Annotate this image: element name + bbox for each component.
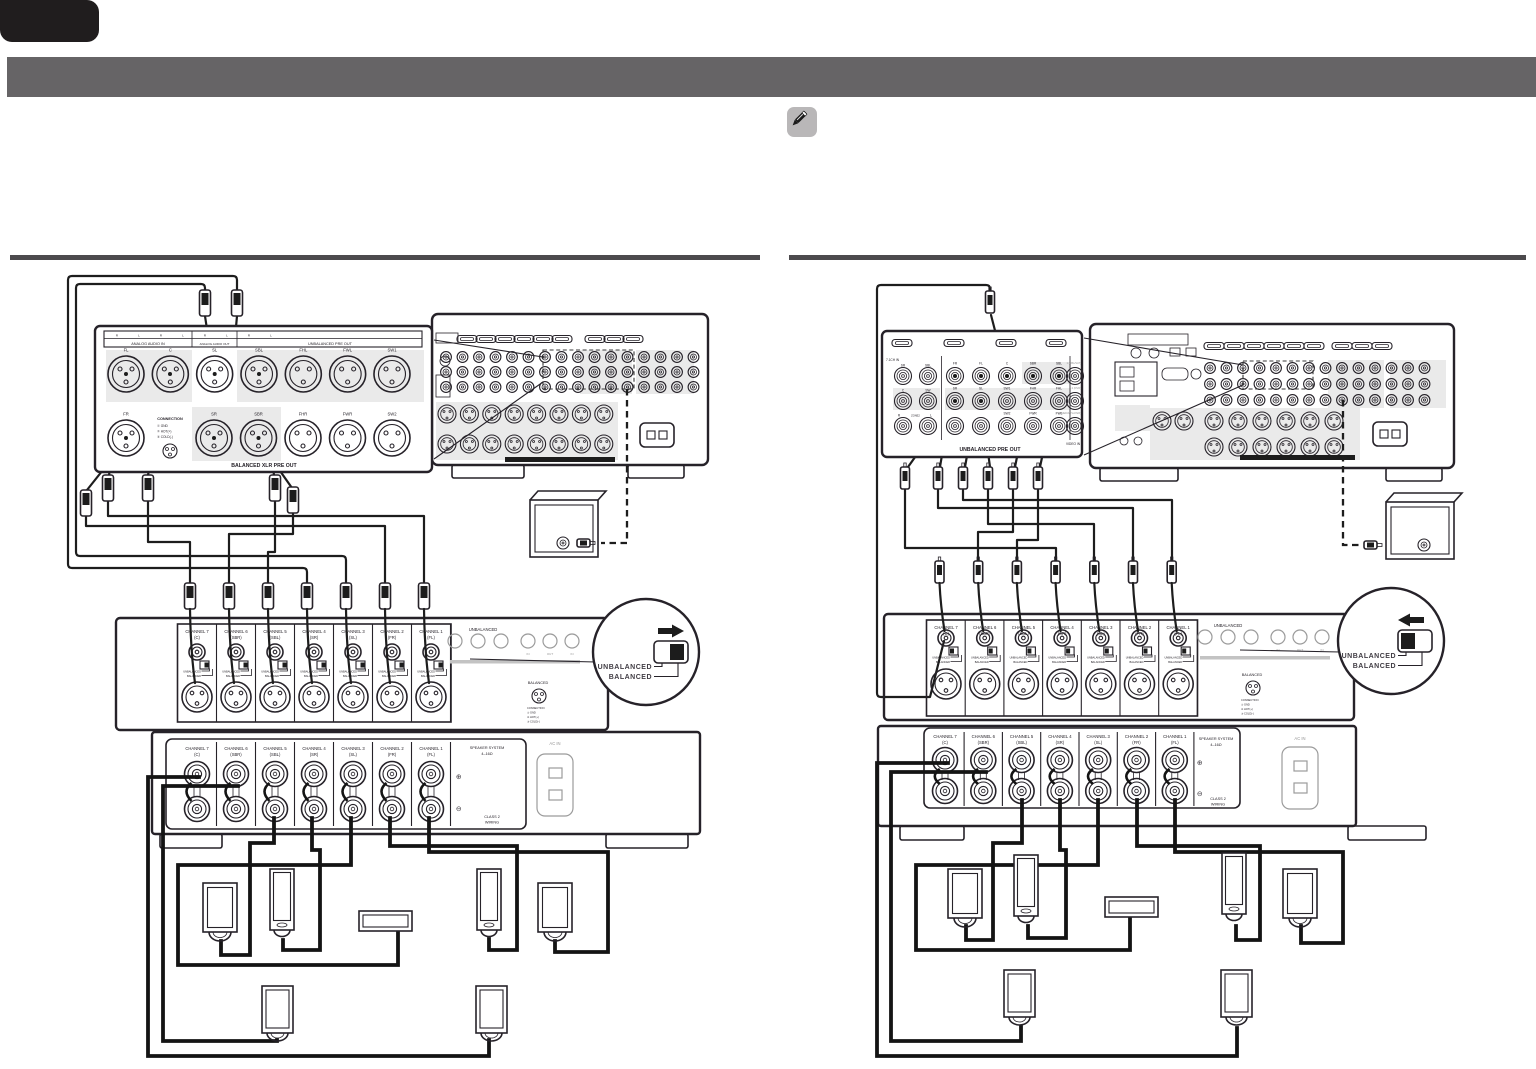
balanced-connection-diagram: RLRLRLRL ANALOG AUDIO IN ANALOG AUDIO OU…: [68, 276, 708, 1056]
xlr-input-icon: [1163, 669, 1193, 699]
height-left-speaker: [270, 869, 294, 937]
svg-text:BALANCED: BALANCED: [1091, 660, 1105, 664]
svg-text:② HOT(+): ② HOT(+): [527, 715, 539, 719]
height-right-speaker: [1222, 853, 1246, 921]
svg-text:UNBALANCED: UNBALANCED: [1164, 656, 1182, 660]
svg-text:4–16Ω: 4–16Ω: [1210, 743, 1221, 747]
svg-text:CHANNEL 4: CHANNEL 4: [302, 746, 326, 751]
svg-text:SBL: SBL: [925, 364, 931, 368]
svg-text:③ COLD(-): ③ COLD(-): [527, 720, 540, 724]
section-label: ANALOG AUDIO IN: [131, 342, 165, 346]
receiver-foot: [1100, 468, 1178, 481]
amp-foot: [606, 834, 688, 848]
balanced-ref-label: BALANCED: [528, 681, 549, 685]
binding-post-icon: [302, 762, 327, 787]
amp-foot: [1348, 826, 1426, 840]
amp-channel-speaker: CHANNEL 7 (C): [185, 742, 217, 826]
svg-text:(SR): (SR): [310, 635, 319, 640]
amp-channel-input: CHANNEL 2 (FR) UNBALANCED BALANCED: [1125, 557, 1159, 716]
hdmi-port-icon: [1372, 343, 1392, 350]
svg-text:UNBALANCED: UNBALANCED: [261, 670, 279, 674]
svg-text:CHANNEL 6: CHANNEL 6: [224, 629, 248, 634]
svg-text:CHANNEL 2: CHANNEL 2: [380, 629, 404, 634]
hdmi-port-icon: [1332, 343, 1352, 350]
svg-text:CHANNEL 6: CHANNEL 6: [972, 734, 996, 739]
svg-text:UNBALANCED: UNBALANCED: [1126, 656, 1144, 660]
rca-plug-icon: [984, 463, 993, 489]
svg-text:IN: IN: [571, 652, 574, 656]
svg-text:FWL: FWL: [343, 348, 353, 353]
svg-text:BALANCED: BALANCED: [1013, 660, 1027, 664]
svg-text:CHANNEL 4: CHANNEL 4: [1048, 734, 1072, 739]
xlr-plug-icon: [380, 583, 391, 609]
svg-text:IN: IN: [1277, 648, 1280, 652]
front-right-speaker: [1283, 869, 1317, 927]
unbalanced-connection-diagram: 7.1CH IN SR SBL C SW R ZONE2 L FR: [877, 285, 1462, 1056]
hdmi-port-icon: [585, 336, 605, 343]
xlr-plug-icon: [302, 583, 313, 609]
svg-text:OUT: OUT: [547, 652, 554, 656]
svg-text:UNBALANCED: UNBALANCED: [1087, 656, 1105, 660]
av-receiver-rear-panel: [1084, 324, 1454, 481]
svg-text:2 (DVD): 2 (DVD): [1072, 386, 1082, 390]
svg-text:SPEAKER SYSTEM: SPEAKER SYSTEM: [1199, 737, 1234, 741]
amp-input-channels: CHANNEL 7 (C) UNBALANCED BALANCED CHA: [182, 583, 451, 722]
rca-grid-column: [1221, 363, 1232, 406]
svg-text:FHL: FHL: [1056, 387, 1062, 391]
hdmi-port-icon: [1224, 343, 1244, 350]
svg-text:(FR): (FR): [1132, 740, 1141, 745]
svg-text:(C): (C): [194, 635, 200, 640]
front-right-speaker: [538, 883, 572, 941]
binding-post-icon: [933, 748, 958, 773]
rca-grid-column: [490, 352, 501, 393]
front-left-speaker: [948, 869, 982, 927]
rca-plug-icon: [1051, 557, 1060, 583]
svg-text:CHANNEL 1: CHANNEL 1: [419, 746, 443, 751]
svg-text:FHR: FHR: [299, 412, 308, 417]
rca-grid-column: [1254, 363, 1265, 406]
amp-input-channels: CHANNEL 7 (C) UNBALANCED BALANCED CHA: [931, 557, 1197, 716]
xlr-input-icon: [221, 682, 251, 712]
svg-text:⊕: ⊕: [456, 774, 462, 781]
amp-channel-input: CHANNEL 4 (SR) UNBALANCED BALANCED: [299, 583, 334, 722]
svg-text:BALANCED: BALANCED: [1052, 660, 1066, 664]
binding-post-icon: [380, 797, 405, 822]
rca-grid-column: [507, 352, 518, 393]
xlr-input-icon: [260, 682, 290, 712]
binding-post-icon: [419, 797, 444, 822]
amp-channel-input: CHANNEL 1 (FL) UNBALANCED BALANCED: [416, 583, 451, 722]
hdmi-port-icon: [514, 336, 534, 343]
svg-text:BALANCED: BALANCED: [975, 660, 989, 664]
svg-text:FWR: FWR: [343, 412, 353, 417]
svg-text:SR: SR: [211, 412, 217, 417]
balanced-label: BALANCED: [609, 674, 652, 681]
hdmi-row-b: [1332, 343, 1392, 350]
preout-highlight-box: [1243, 361, 1313, 389]
svg-text:(SBL): (SBL): [270, 752, 281, 757]
amp-channel-speaker: CHANNEL 2 (FR): [1124, 732, 1156, 806]
svg-text:CHANNEL 2: CHANNEL 2: [1125, 734, 1149, 739]
svg-text:SW2: SW2: [1004, 412, 1011, 416]
binding-post-icon: [419, 762, 444, 787]
unbalanced-label: UNBALANCED: [598, 664, 652, 671]
rca-plug-icon: [934, 463, 943, 489]
rca-plug-icon: [974, 557, 983, 583]
unbalanced-section-label: UNBALANCED: [469, 627, 498, 632]
xlr-input-icon: [299, 682, 329, 712]
ac-inlet-icon: [1282, 747, 1318, 809]
svg-text:CHANNEL 6: CHANNEL 6: [224, 746, 248, 751]
power-amp-speaker-panel: CHANNEL 7 (C) CHANNEL 6 (SBR): [878, 726, 1426, 840]
rca-plug-icon: [1034, 463, 1043, 489]
svg-text:(SBL): (SBL): [270, 635, 281, 640]
svg-text:③ COLD(-): ③ COLD(-): [1241, 712, 1254, 716]
svg-text:⊕: ⊕: [1197, 760, 1203, 767]
amp-foot: [160, 834, 222, 848]
amp-channel-input: CHANNEL 5 (SBL) UNBALANCED BALANCED: [1008, 557, 1042, 716]
svg-text:(C): (C): [942, 740, 948, 745]
hdmi-port-icon: [1284, 343, 1304, 350]
xlr-input-icon: [338, 682, 368, 712]
binding-post-icon: [185, 797, 210, 822]
hdmi-port-icon: [1352, 343, 1372, 350]
amp-channel-input: CHANNEL 5 (SBL) UNBALANCED BALANCED: [260, 583, 295, 722]
svg-text:SW1: SW1: [1004, 387, 1011, 391]
power-amp-input-panel: CHANNEL 7 (C) UNBALANCED BALANCED CHA: [884, 557, 1354, 720]
svg-text:UNBALANCED: UNBALANCED: [339, 670, 357, 674]
amp-channel-input: CHANNEL 3 (SL) UNBALANCED BALANCED: [338, 583, 373, 722]
hdmi-port-icon: [476, 336, 496, 343]
hdmi-port-icon: [623, 336, 643, 343]
balanced-ref-label: BALANCED: [1242, 673, 1263, 677]
svg-text:SW: SW: [925, 389, 930, 393]
binding-post-icon: [1124, 748, 1149, 773]
amp-channel-speaker: CHANNEL 1 (FL): [419, 742, 451, 826]
binding-post-icon: [971, 748, 996, 773]
center-speaker: [1105, 897, 1158, 917]
svg-text:UNBALANCED: UNBALANCED: [971, 656, 989, 660]
surround-right-speaker: [1221, 970, 1252, 1025]
hdmi-port-icon: [533, 336, 553, 343]
section-label: ANALOG AUDIO OUT: [200, 342, 230, 346]
rca-plug-icon: [1167, 557, 1176, 583]
rca-plug-icon: [935, 557, 944, 583]
svg-text:WIRING: WIRING: [1211, 803, 1225, 807]
hdmi-port-icon: [604, 336, 624, 343]
amp-channel-speaker: CHANNEL 4 (SR): [302, 742, 334, 826]
unbalanced-preout-panel: 7.1CH IN SR SBL C SW R ZONE2 L FR: [882, 331, 1084, 457]
svg-text:FL: FL: [124, 348, 130, 353]
amp-channel-speaker: CHANNEL 6 (SBR): [971, 732, 1003, 806]
xlr-plug-icon: [232, 290, 243, 316]
svg-text:(SR): (SR): [310, 752, 319, 757]
hdmi-row-b: [585, 336, 643, 343]
corner-label: 7.1CH IN: [886, 358, 900, 362]
ac-in-label: AC IN: [549, 741, 560, 746]
svg-text:(SBR): (SBR): [230, 752, 242, 757]
av-receiver-rear-panel: [432, 314, 708, 478]
xlr-plug-icon: [224, 583, 235, 609]
balanced-xlr-preout-panel: RLRLRLRL ANALOG AUDIO IN ANALOG AUDIO OU…: [95, 326, 432, 472]
svg-text:CHANNEL 3: CHANNEL 3: [1087, 734, 1111, 739]
front-left-speaker: [203, 883, 237, 941]
surround-left-speaker: [262, 986, 293, 1041]
svg-text:SR: SR: [953, 387, 958, 391]
xlr-plug-icon: [419, 583, 430, 609]
amp-channel-speaker: CHANNEL 6 (SBR): [224, 742, 256, 826]
xlr-plug-icon: [81, 490, 92, 516]
binding-post-icon: [1086, 748, 1111, 773]
xlr-plug-icon: [185, 583, 196, 609]
switch-mode-callout: UNBALANCED BALANCED: [470, 599, 699, 705]
svg-text:(SR): (SR): [1056, 740, 1065, 745]
xlr-input-icon: [416, 682, 446, 712]
binding-post-icon: [302, 797, 327, 822]
xlr-input-icon: [1086, 669, 1116, 699]
svg-text:UNBALANCED: UNBALANCED: [183, 670, 201, 674]
surround-left-speaker: [1004, 970, 1035, 1025]
svg-text:SW2: SW2: [387, 412, 397, 417]
xlr-plug-icon: [103, 475, 114, 501]
svg-text:BALANCED: BALANCED: [1130, 660, 1144, 664]
hdmi-port-icon: [1204, 343, 1224, 350]
amp-channel-speaker: CHANNEL 5 (SBL): [1009, 732, 1041, 806]
svg-text:UNBALANCED: UNBALANCED: [222, 670, 240, 674]
svg-text:③ COLD(-): ③ COLD(-): [157, 435, 173, 439]
svg-text:FWR: FWR: [1029, 412, 1037, 416]
svg-text:(SBR): (SBR): [230, 635, 242, 640]
svg-text:CHANNEL 7: CHANNEL 7: [933, 734, 957, 739]
rca-plug-icon: [986, 287, 995, 313]
svg-text:① GND: ① GND: [157, 424, 169, 428]
surround-right-speaker: [476, 986, 507, 1041]
svg-text:⊖: ⊖: [1197, 791, 1203, 798]
amp-channel-speaker: CHANNEL 4 (SR): [1047, 732, 1079, 806]
svg-text:CHANNEL 5: CHANNEL 5: [263, 629, 287, 634]
svg-text:UNBALANCED: UNBALANCED: [417, 670, 435, 674]
svg-text:SPEAKER SYSTEM: SPEAKER SYSTEM: [470, 746, 505, 750]
xlr-plug-icon: [270, 475, 281, 501]
ac-inlet-icon: [537, 754, 573, 816]
xlr-input-icon: [1008, 669, 1038, 699]
svg-text:CONNECTION: CONNECTION: [1241, 698, 1259, 702]
svg-text:① GND: ① GND: [1241, 703, 1250, 707]
xlr-input-icon: [1047, 669, 1077, 699]
rca-grid-column: [523, 352, 534, 393]
amp-channel-input: CHANNEL 2 (FR) UNBALANCED BALANCED: [377, 583, 412, 722]
amp-channel-input: CHANNEL 1 (FL) UNBALANCED BALANCED: [1163, 557, 1197, 716]
amp-channel-speaker: CHANNEL 7 (C): [933, 732, 965, 806]
svg-text:(SBR): (SBR): [978, 740, 990, 745]
svg-text:3 (MEDIA PLAYER): 3 (MEDIA PLAYER): [1058, 411, 1081, 415]
svg-text:UNBALANCED: UNBALANCED: [932, 656, 950, 660]
amp-channel-input: CHANNEL 6 (SBR) UNBALANCED BALANCED: [221, 583, 256, 722]
xlr-plug-icon: [288, 487, 299, 513]
svg-text:SW1: SW1: [387, 348, 397, 353]
connection-diagrams: RLRLRLRL ANALOG AUDIO IN ANALOG AUDIO OU…: [0, 0, 1536, 1069]
svg-text:(SL): (SL): [1094, 740, 1103, 745]
hdmi-port-icon: [1244, 343, 1264, 350]
amp-channel-speaker: CHANNEL 2 (FR): [380, 742, 412, 826]
amp-foot: [900, 826, 964, 840]
rca-grid-column: [540, 352, 551, 393]
hdmi-row-a: [457, 336, 572, 343]
svg-text:FR: FR: [123, 412, 129, 417]
rca-plug-icon: [1364, 541, 1382, 549]
binding-post-icon: [224, 762, 249, 787]
svg-text:UNBALANCED: UNBALANCED: [300, 670, 318, 674]
amp-channel-speaker: CHANNEL 1 (FL): [1162, 732, 1194, 806]
svg-text:CONNECTION: CONNECTION: [157, 417, 183, 421]
binding-post-icon: [224, 797, 249, 822]
svg-text:FR: FR: [953, 362, 958, 366]
svg-text:(SL): (SL): [349, 752, 358, 757]
svg-text:C: C: [169, 348, 172, 353]
amp-channel-input: CHANNEL 7 (C) UNBALANCED BALANCED: [931, 557, 965, 716]
svg-text:FHL: FHL: [299, 348, 308, 353]
hdmi-port-icon: [1264, 343, 1284, 350]
svg-text:(FL): (FL): [427, 635, 435, 640]
video-in-label: VIDEO IN: [1066, 442, 1081, 446]
rca-plug-icon: [1090, 557, 1099, 583]
svg-text:BALANCED: BALANCED: [936, 660, 950, 664]
svg-text:1 (CBL/SAT): 1 (CBL/SAT): [1066, 361, 1081, 365]
xlr-plug-icon: [263, 583, 274, 609]
svg-text:SBL: SBL: [1056, 362, 1062, 366]
svg-text:CONNECTION: CONNECTION: [527, 706, 545, 710]
svg-text:(C): (C): [194, 752, 200, 757]
unbalanced-section-label: UNBALANCED: [1214, 623, 1243, 628]
hdmi-row-a: [1204, 343, 1324, 350]
svg-text:FHR: FHR: [1030, 387, 1037, 391]
svg-text:FL: FL: [979, 362, 983, 366]
amp-channel-input: CHANNEL 6 (SBR) UNBALANCED BALANCED: [970, 557, 1004, 716]
svg-text:L: L: [930, 414, 932, 418]
svg-text:CHANNEL 5: CHANNEL 5: [263, 746, 287, 751]
power-amp-speaker-panel: CHANNEL 7 (C) CHANNEL 6 (SBR): [152, 732, 700, 848]
unbalanced-label: UNBALANCED: [1342, 653, 1396, 660]
svg-text:SBR: SBR: [1030, 362, 1037, 366]
binding-post-icon: [341, 762, 366, 787]
amp-channel-speaker: CHANNEL 5 (SBL): [263, 742, 295, 826]
svg-text:CHANNEL 4: CHANNEL 4: [302, 629, 326, 634]
svg-text:BALANCED: BALANCED: [1168, 660, 1182, 664]
svg-text:IN: IN: [527, 652, 530, 656]
center-speaker: [359, 911, 412, 931]
amp-channel-input: CHANNEL 7 (C) UNBALANCED BALANCED: [182, 583, 217, 722]
xlr-input-icon: [970, 669, 1000, 699]
amp-channel-speaker: CHANNEL 3 (SL): [1086, 732, 1118, 806]
svg-text:SBL: SBL: [255, 348, 264, 353]
svg-text:CHANNEL 1: CHANNEL 1: [1163, 734, 1187, 739]
svg-text:SBR: SBR: [254, 412, 263, 417]
binding-post-icon: [341, 797, 366, 822]
svg-text:UNBALANCED: UNBALANCED: [378, 670, 396, 674]
height-right-speaker: [477, 869, 501, 937]
rca-plug-icon: [901, 463, 910, 489]
svg-text:CLASS 2: CLASS 2: [484, 815, 500, 819]
svg-text:SL: SL: [212, 348, 218, 353]
section-label: UNBALANCED PRE OUT: [308, 342, 353, 346]
svg-text:UNBALANCED: UNBALANCED: [1048, 656, 1066, 660]
svg-text:CHANNEL 7: CHANNEL 7: [185, 629, 209, 634]
xlr-input-icon: [182, 682, 212, 712]
svg-text:4–16Ω: 4–16Ω: [481, 752, 492, 756]
rca-plug-icon: [1129, 557, 1138, 583]
svg-text:② HOT(+): ② HOT(+): [1241, 707, 1253, 711]
svg-text:CHANNEL 7: CHANNEL 7: [185, 746, 209, 751]
svg-text:② HOT(+): ② HOT(+): [157, 430, 171, 434]
hdmi-port-icon: [495, 336, 515, 343]
ac-inlet-icon: [640, 423, 674, 447]
receiver-foot: [1386, 468, 1442, 481]
amp-channel-input: CHANNEL 4 (SR) UNBALANCED BALANCED: [1047, 557, 1081, 716]
amp-speaker-channels: CHANNEL 7 (C) CHANNEL 6 (SBR): [933, 732, 1194, 806]
panel-footer-label: BALANCED XLR PRE OUT: [231, 463, 297, 469]
hdmi-port-icon: [552, 336, 572, 343]
svg-text:CLASS 2: CLASS 2: [1210, 797, 1226, 801]
binding-post-icon: [1047, 748, 1072, 773]
rca-plug-icon: [1012, 557, 1021, 583]
binding-post-icon: [185, 762, 210, 787]
svg-text:CHANNEL 3: CHANNEL 3: [341, 746, 365, 751]
binding-post-icon: [1009, 748, 1034, 773]
height-left-speaker: [1014, 855, 1038, 923]
xlr-input-icon: [377, 682, 407, 712]
receiver-foot: [628, 465, 684, 478]
svg-text:CHANNEL 3: CHANNEL 3: [341, 629, 365, 634]
receiver-foot: [452, 465, 524, 478]
svg-text:ZONE2: ZONE2: [911, 414, 920, 418]
rca-grid-column: [556, 352, 567, 393]
rca-plug-icon: [1009, 463, 1018, 489]
svg-text:CHANNEL 2: CHANNEL 2: [380, 746, 404, 751]
xlr-input-icon: [931, 669, 961, 699]
subwoofer: [1343, 400, 1462, 559]
rca-grid-column: [457, 352, 468, 393]
svg-text:(FL): (FL): [1171, 740, 1179, 745]
svg-text:(SL): (SL): [349, 635, 358, 640]
switch-mode-callout: UNBALANCED BALANCED: [1240, 588, 1444, 694]
manual-page: RLRLRLRL ANALOG AUDIO IN ANALOG AUDIO OU…: [0, 0, 1536, 1069]
rca-grid-column: [1287, 363, 1298, 406]
rca-grid-column: [474, 352, 485, 393]
hdmi-port-icon: [1304, 343, 1324, 350]
amp-speaker-channels: CHANNEL 7 (C) CHANNEL 6 (SBR): [185, 742, 451, 826]
binding-post-icon: [380, 762, 405, 787]
hdmi-port-icon: [457, 336, 477, 343]
svg-text:(FR): (FR): [388, 635, 397, 640]
binding-post-icon: [1162, 748, 1187, 773]
binding-post-icon: [263, 762, 288, 787]
svg-text:CHANNEL 1: CHANNEL 1: [419, 629, 443, 634]
ac-in-label: AC IN: [1294, 736, 1305, 741]
amp-channel-input: CHANNEL 3 (SL) UNBALANCED BALANCED: [1086, 557, 1120, 716]
svg-text:SL: SL: [979, 387, 983, 391]
svg-text:WIRING: WIRING: [485, 821, 499, 825]
svg-text:SR: SR: [901, 364, 906, 368]
rca-plug-icon: [959, 463, 968, 489]
power-amp-input-panel: CHANNEL 7 (C) UNBALANCED BALANCED CHA: [116, 583, 608, 730]
svg-text:(FL): (FL): [427, 752, 435, 757]
svg-text:(FR): (FR): [388, 752, 397, 757]
panel-footer-label: UNBALANCED PRE OUT: [959, 447, 1021, 453]
xlr-plug-icon: [200, 290, 211, 316]
svg-text:(SBL): (SBL): [1016, 740, 1027, 745]
ac-inlet-icon: [1373, 422, 1407, 446]
